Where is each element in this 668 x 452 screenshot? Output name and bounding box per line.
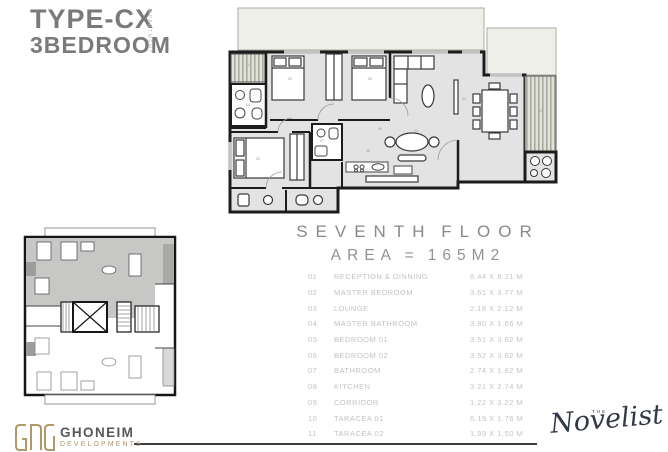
plan-room-number: 01 [462, 97, 466, 101]
table-cell-name: BEDROOM 02 [334, 351, 470, 360]
table-cell-num: 09 [308, 398, 334, 407]
plan-room-number: 07 [320, 139, 324, 143]
table-row: 03LOUNGE2.18 X 2.12 M [308, 300, 540, 316]
table-row: 10TARACEA 016.19 X 1.76 M [308, 410, 540, 426]
plan-room-number: 06 [368, 77, 372, 81]
table-cell-num: 11 [308, 429, 334, 438]
table-cell-dims: 3.61 X 3.77 M [470, 288, 540, 297]
table-cell-dims: 3.51 X 3.62 M [470, 335, 540, 344]
table-cell-num: 01 [308, 272, 334, 281]
table-cell-num: 03 [308, 304, 334, 313]
table-row: 05BEDROOM 013.51 X 3.62 M [308, 332, 540, 348]
table-cell-dims: 6.44 X 8.21 M [470, 272, 540, 281]
floor-label: SEVENTH FLOOR [278, 222, 558, 242]
table-cell-name: RECEPTION & DINNING [334, 272, 470, 281]
table-cell-name: BEDROOM 01 [334, 335, 470, 344]
plan-room-number: 04 [246, 103, 250, 107]
table-cell-num: 02 [308, 288, 334, 297]
brand-name: GHONEIM [60, 425, 143, 440]
table-cell-dims: 3.21 X 2.74 M [470, 382, 540, 391]
table-row: 09CORRIDOR1.22 X 3.22 M [308, 395, 540, 411]
table-row: 11TARACEA 021.99 X 1.50 M [308, 426, 540, 442]
balcony-right [525, 76, 556, 152]
table-cell-name: KITCHEN [334, 382, 470, 391]
area-label: AREA = 165M2 [278, 247, 558, 265]
terrace-strip-top [238, 8, 484, 50]
table-row: 06BEDROOM 023.52 X 3.62 M [308, 347, 540, 363]
plan-room-number: 02 [256, 157, 260, 161]
table-cell-name: BATHROOM [334, 366, 470, 375]
main-floor-plan: 0102030405060708091011 [226, 0, 666, 224]
table-cell-name: CORRIDOR [334, 398, 470, 407]
table-cell-num: 08 [308, 382, 334, 391]
table-cell-name: TARACEA 02 [334, 429, 470, 438]
table-cell-num: 04 [308, 319, 334, 328]
balcony-corner [525, 152, 556, 182]
ghoneim-monogram-icon [13, 422, 57, 452]
table-cell-name: TARACEA 01 [334, 414, 470, 423]
table-cell-num: 05 [308, 335, 334, 344]
table-cell-num: 07 [308, 366, 334, 375]
table-row: 01RECEPTION & DINNING6.44 X 8.21 M [308, 269, 540, 285]
novelist-logo: THE Novelist [548, 398, 660, 448]
brand-block: GHONEIM DEVELOPMENTS [60, 425, 143, 448]
plan-room-number: 03 [414, 129, 418, 133]
table-cell-name: LOUNGE [334, 304, 470, 313]
table-row: 04MASTER BATHROOM3.80 X 1.66 M [308, 316, 540, 332]
plan-room-number: 08 [366, 149, 370, 153]
table-cell-dims: 2.74 X 1.82 M [470, 366, 540, 375]
balcony-left [231, 54, 265, 82]
brochure-page: TYPE-CX 3BEDROOM APARTMENT [0, 0, 668, 452]
footer-rule [134, 443, 537, 445]
brand-subtitle: DEVELOPMENTS [60, 441, 143, 448]
terrace-strip-right [487, 28, 556, 75]
table-cell-num: 06 [308, 351, 334, 360]
table-cell-name: MASTER BEDROOM [334, 288, 470, 297]
room-table: 01RECEPTION & DINNING6.44 X 8.21 M02MAST… [308, 269, 540, 442]
floor-heading: SEVENTH FLOOR AREA = 165M2 [278, 222, 558, 265]
table-cell-dims: 6.19 X 1.76 M [470, 414, 540, 423]
table-cell-dims: 1.99 X 1.50 M [470, 429, 540, 438]
table-cell-dims: 1.22 X 3.22 M [470, 398, 540, 407]
table-cell-dims: 2.18 X 2.12 M [470, 304, 540, 313]
novelist-script: Novelist [549, 399, 664, 440]
table-row: 08KITCHEN3.21 X 2.74 M [308, 379, 540, 395]
title-vertical-label: APARTMENT [146, 10, 152, 66]
plan-room-number: 09 [378, 127, 382, 131]
table-cell-dims: 3.52 X 3.62 M [470, 351, 540, 360]
plan-room-number: 11 [246, 63, 250, 67]
key-plan [17, 226, 192, 406]
plan-room-number: 10 [538, 109, 542, 113]
table-row: 07BATHROOM2.74 X 1.82 M [308, 363, 540, 379]
plan-room-number: 05 [288, 77, 292, 81]
table-row: 02MASTER BEDROOM3.61 X 3.77 M [308, 285, 540, 301]
table-cell-dims: 3.80 X 1.66 M [470, 319, 540, 328]
table-cell-name: MASTER BATHROOM [334, 319, 470, 328]
table-cell-num: 10 [308, 414, 334, 423]
